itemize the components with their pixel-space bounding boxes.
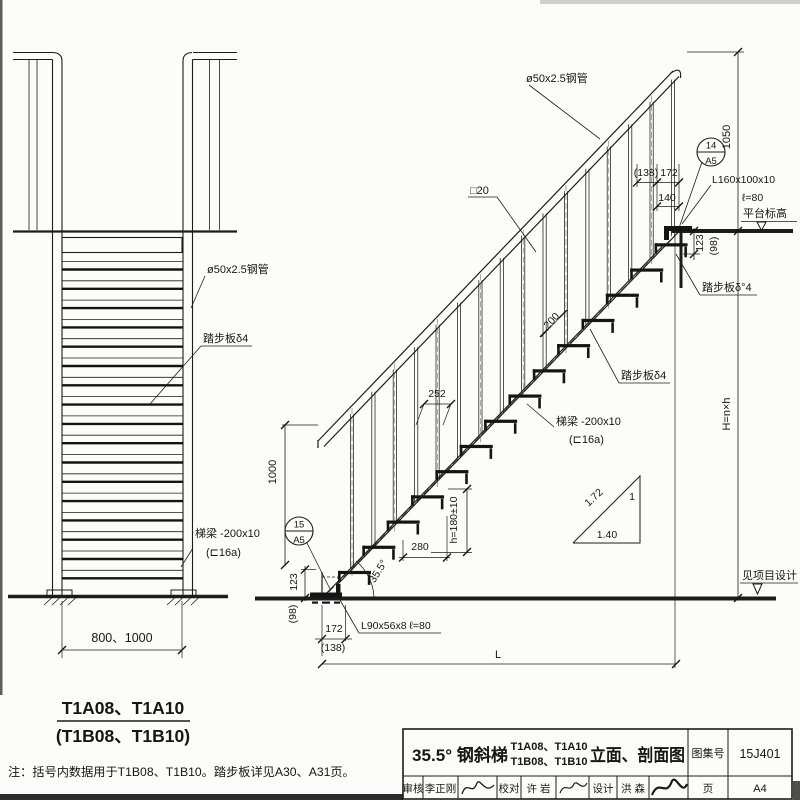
front-elevation: 800、1000 ø50x2.5钢管 踏步板δ4 梯梁 -200x10 (⊏16… <box>8 53 269 747</box>
designer-signature <box>652 780 687 795</box>
front-tread-label: 踏步板δ4 <box>203 331 248 345</box>
hatch-tick <box>60 598 68 606</box>
tread <box>557 344 590 347</box>
slope-triangle: 1.72 1 1.40 <box>573 476 640 543</box>
reviewer-signature <box>462 782 494 794</box>
dim-138-top: (138) <box>634 167 659 179</box>
platform-level-symbol: 平台标高 <box>741 206 797 231</box>
hatch-tick <box>68 598 76 606</box>
section-beam-callout: 梯梁 -200x10 (⊏16a) <box>527 404 621 446</box>
designer-label: 设计 <box>593 782 614 795</box>
page-number: A4 <box>753 783 766 795</box>
tread <box>460 445 493 448</box>
dim-252: 252 <box>428 388 446 400</box>
checker-signature <box>560 783 587 793</box>
tread <box>582 319 615 322</box>
dim-172-bottom: 172 <box>325 623 343 635</box>
reviewer-name: 李正刚 <box>425 782 457 795</box>
dim-98-top: (98) <box>708 237 720 256</box>
slope-horizontal: 1.40 <box>597 529 618 541</box>
tread-label-mid: 踏步板δ4 <box>621 368 666 382</box>
dim-123-bottom: 123 <box>288 573 300 591</box>
ground-level-label: 见项目设计 <box>742 569 797 582</box>
designer-name: 洪 森 <box>621 782 645 795</box>
right-balusters <box>350 80 674 577</box>
tread <box>514 423 517 434</box>
dim-280: 280 <box>411 541 429 553</box>
tread <box>563 373 566 384</box>
front-pipe-callout: ø50x2.5钢管 <box>191 262 269 308</box>
dim-1000: 1000 <box>267 460 279 484</box>
model-title: T1A08、T1A10 <box>62 698 185 718</box>
dim-1050: 1050 <box>721 125 733 149</box>
drawing-note: 注：括号内数据用于T1B08、T1B10。踏步板详见A30、A31页。 <box>8 764 355 779</box>
dim-98-bottom: (98) <box>287 605 299 624</box>
tread-callout-top: 踏步板δ°4 <box>676 254 757 295</box>
slope-hypotenuse: 1.72 <box>582 486 605 509</box>
right-treads <box>338 243 688 585</box>
tread <box>387 520 420 523</box>
tread <box>636 297 639 308</box>
tread <box>484 420 517 423</box>
checker-name: 许 岩 <box>527 782 551 795</box>
tread <box>411 495 414 506</box>
platform-angle-label: L160x100x10 <box>712 174 775 186</box>
tread <box>655 243 658 254</box>
title-angle: 35.5° 钢斜梯 <box>412 745 508 765</box>
section-beam-size: (⊏16a) <box>569 434 604 446</box>
detail-top-sheet: A5 <box>705 156 717 167</box>
slope-vertical: 1 <box>629 491 635 503</box>
tread <box>611 322 614 333</box>
tread <box>557 344 560 355</box>
model-title-alt: (T1B08、T1B10) <box>56 726 190 746</box>
reviewer-label: 审核 <box>403 782 424 795</box>
left-ground-hatch <box>44 598 199 606</box>
tread <box>655 243 688 246</box>
tread <box>606 294 609 305</box>
tread <box>533 369 566 372</box>
tread <box>338 571 341 582</box>
level-triangle-icon <box>753 584 762 594</box>
atlas-label: 图集号 <box>692 746 725 760</box>
tread <box>392 549 395 560</box>
title-block: 35.5° 钢斜梯 T1A08、T1A10 T1B08、T1B10 立面、剖面图… <box>403 729 793 799</box>
baluster-label: □20 <box>470 185 489 197</box>
platform-level-label: 平台标高 <box>743 206 787 220</box>
dim-total-height: H=n×h <box>721 397 733 430</box>
tread <box>630 268 633 279</box>
tread <box>490 448 493 459</box>
front-tread-callout: 踏步板δ4 <box>150 331 252 404</box>
base-angle-callout: L90x56x8 ℓ=80 <box>340 600 441 633</box>
tread <box>508 394 541 397</box>
front-width-dim-text: 800、1000 <box>91 631 152 645</box>
atlas-number: 15J401 <box>739 747 780 761</box>
detail-bottom-number: 15 <box>294 520 305 531</box>
hatch-tick <box>183 598 191 606</box>
tread <box>460 445 463 456</box>
tread <box>606 294 639 297</box>
tread <box>484 420 487 431</box>
dim-tick <box>540 329 548 337</box>
dim-200: 200 <box>541 310 562 331</box>
title-models-2: T1B08、T1B10 <box>510 756 587 768</box>
title-view-type: 立面、剖面图 <box>590 745 685 765</box>
tread <box>387 520 390 531</box>
baluster-callout: □20 <box>468 185 536 252</box>
tread <box>465 474 468 485</box>
tread <box>587 348 590 359</box>
tread <box>508 394 511 405</box>
dim-total-run: L <box>495 649 501 661</box>
detail-bottom-sheet: A5 <box>293 535 305 546</box>
section-beam-label: 梯梁 -200x10 <box>556 414 621 428</box>
tread <box>411 495 444 498</box>
scan-artifacts <box>0 0 800 800</box>
detail-top-number: 14 <box>706 141 717 152</box>
tread <box>417 524 420 535</box>
dim-123-top: 123 <box>694 234 706 252</box>
checker-label: 校对 <box>499 782 520 795</box>
front-structure <box>8 53 237 597</box>
base-angle-label: L90x56x8 ℓ=80 <box>361 620 431 632</box>
dim-slope-angle: 35.5° <box>367 558 390 585</box>
hatch-tick <box>191 598 199 606</box>
tread <box>533 369 536 380</box>
drawing-sheet: 800、1000 ø50x2.5钢管 踏步板δ4 梯梁 -200x10 (⊏16… <box>0 0 800 800</box>
tread <box>362 546 395 549</box>
dim-172-top: 172 <box>660 167 678 179</box>
tread <box>582 319 585 330</box>
front-width-dim: 800、1000 <box>62 601 182 658</box>
title-models-1: T1A08、T1A10 <box>510 741 587 753</box>
stair-drawing: 800、1000 ø50x2.5钢管 踏步板δ4 梯梁 -200x10 (⊏16… <box>0 0 800 800</box>
tread <box>441 499 444 510</box>
ground-level-symbol: 见项目设计 <box>740 569 798 594</box>
front-beam-label: 梯梁 -200x10 <box>195 526 260 540</box>
tread <box>630 268 663 271</box>
hatch-tick <box>44 598 52 606</box>
platform-angle-len: ℓ=80 <box>742 192 763 204</box>
tread <box>660 272 663 283</box>
dim-riser: h=180±10 <box>448 496 460 543</box>
tread-label-top: 踏步板δ°4 <box>702 280 752 294</box>
tread-callout-mid: 踏步板δ4 <box>590 329 670 383</box>
tread <box>538 398 541 409</box>
hatch-tick <box>52 598 60 606</box>
hatch-tick <box>167 598 175 606</box>
left-tread-rungs <box>62 262 183 579</box>
tread <box>435 470 468 473</box>
tread <box>362 546 365 557</box>
front-beam-size: (⊏16a) <box>206 547 241 559</box>
front-pipe-label: ø50x2.5钢管 <box>207 262 269 276</box>
tread <box>684 247 687 258</box>
page-label: 页 <box>703 783 714 795</box>
tread <box>435 470 438 481</box>
dim-138-bottom: (138) <box>321 642 346 654</box>
section-pipe-label: ø50x2.5钢管 <box>526 71 588 85</box>
section-pipe-callout: ø50x2.5钢管 <box>526 71 600 139</box>
dim-140: 140 <box>658 192 676 204</box>
